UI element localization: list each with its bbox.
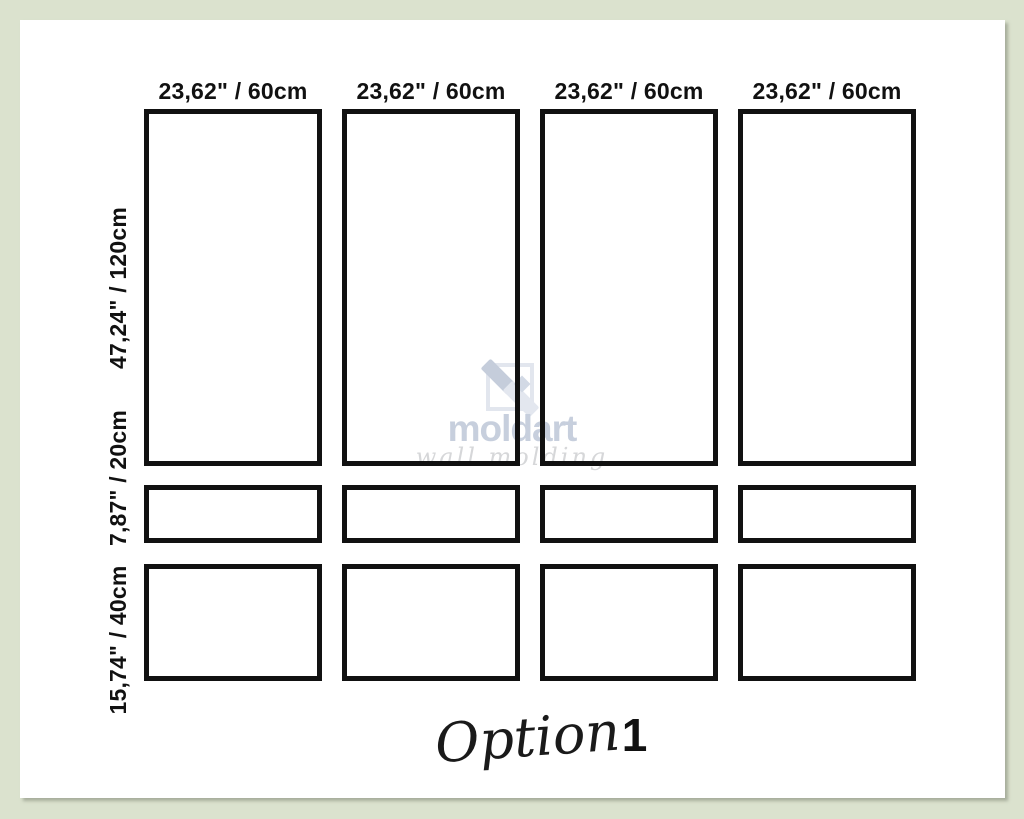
column-width-label-4: 23,62" / 60cm <box>738 77 916 105</box>
option-number-text: 1 <box>622 712 648 758</box>
panel-middle-3 <box>540 485 718 543</box>
panel-bottom-4 <box>738 564 916 681</box>
option-script-text: Option <box>432 692 622 785</box>
row-height-label-bottom: 15,74" / 40cm <box>104 480 132 800</box>
panel-top-1 <box>144 109 322 466</box>
panel-bottom-1 <box>144 564 322 681</box>
panel-top-3 <box>540 109 718 466</box>
panel-middle-2 <box>342 485 520 543</box>
panel-middle-1 <box>144 485 322 543</box>
panel-middle-4 <box>738 485 916 543</box>
column-width-label-1: 23,62" / 60cm <box>144 77 322 105</box>
column-width-label-2: 23,62" / 60cm <box>342 77 520 105</box>
panel-top-2 <box>342 109 520 466</box>
panel-bottom-2 <box>342 564 520 681</box>
page-background: moldart wall molding 23,62" / 60cm 23,62… <box>0 0 1024 819</box>
panel-bottom-3 <box>540 564 718 681</box>
column-width-label-3: 23,62" / 60cm <box>540 77 718 105</box>
footer-option: Option 1 <box>411 698 671 788</box>
panel-top-4 <box>738 109 916 466</box>
